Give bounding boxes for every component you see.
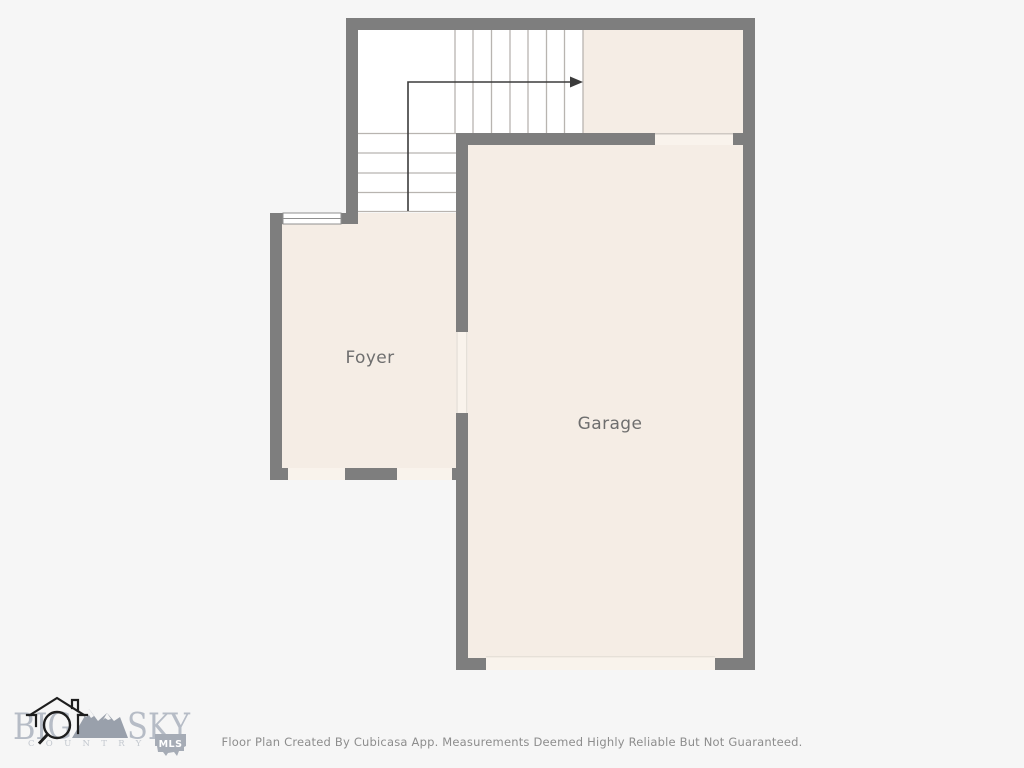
wall-top [346,18,755,30]
garage-door-opening [486,656,715,670]
garage-label: Garage [578,414,643,434]
foyer-entry-opening-right [397,468,452,480]
garage-door-edge-line [486,656,715,657]
wall-foyer-top-right [341,213,358,224]
wall-garage-bottom-left [456,658,486,670]
window-symbol [283,213,341,224]
disclaimer-text: Floor Plan Created By Cubicasa App. Meas… [0,735,1024,749]
foyer-entry-opening-left [288,468,345,480]
wall-garage-top [456,133,655,145]
wall-garage-left-upper [456,133,468,332]
wall-right [743,18,755,670]
doorway-edge-line [655,133,733,135]
wall-stair-left [346,18,358,224]
wall-foyer-bottom-mid [345,468,397,480]
upper-room-floor [583,30,743,133]
foyer-label: Foyer [345,348,394,368]
upper-room-garage-doorway [655,133,733,145]
wall-foyer-left [270,213,282,480]
floor-plan: Foyer Garage [0,0,1024,768]
garage-floor [456,133,743,658]
foyer-floor [282,213,456,468]
bigsky-mls-logo: BIG SKY COUNTRY MLS [10,692,200,764]
wall-foyer-bottom-left [270,468,288,480]
wall-garage-left-lower [456,413,468,658]
foyer-garage-doorway [456,332,468,413]
wall-garage-bottom-right [715,658,755,670]
wall-garage-top-stub [733,133,743,145]
